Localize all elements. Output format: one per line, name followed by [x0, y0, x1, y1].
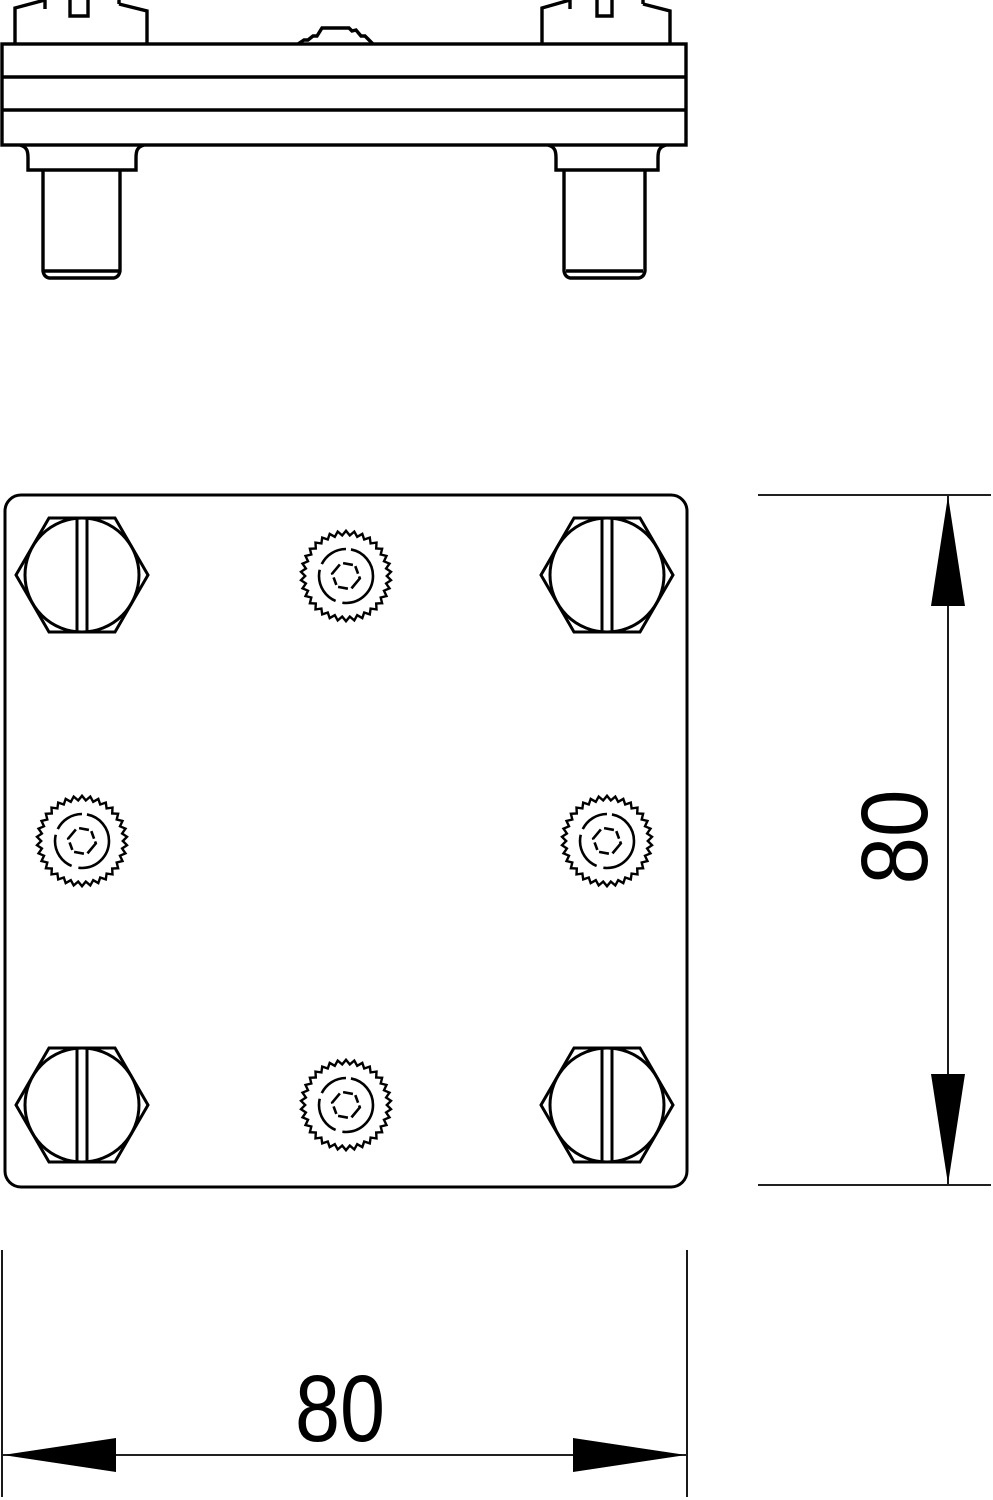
- screw-head-edge: [119, 4, 147, 44]
- horizontal-dimension-label: 80: [295, 1356, 385, 1462]
- vertical-dimension: 80: [758, 495, 991, 1185]
- drawing-canvas: 80 80: [0, 0, 993, 1500]
- rivet-bump: [298, 28, 373, 44]
- knurled-rivet-bottom: [301, 1060, 391, 1150]
- screw-head-edge: [542, 0, 570, 44]
- clamp-bar-body: [2, 44, 686, 145]
- arrowhead-left-icon: [3, 1438, 116, 1472]
- screw-head-edge: [15, 0, 45, 44]
- vertical-dimension-label: 80: [842, 790, 948, 885]
- hex-bolt-top-left: [16, 518, 148, 632]
- screw-slot: [70, 0, 88, 16]
- arrowhead-up-icon: [931, 496, 965, 606]
- screw-head-right: [542, 0, 670, 44]
- stud-collar: [548, 145, 666, 170]
- stud-shaft: [43, 170, 120, 278]
- stud-collar: [20, 145, 144, 170]
- screw-head-left: [15, 0, 147, 44]
- side-view-clamp: [2, 0, 686, 278]
- hex-bolt-top-right: [541, 518, 673, 632]
- plan-view-plate: [5, 495, 687, 1187]
- screw-head-edge: [643, 4, 670, 44]
- knurled-rivet-top: [301, 531, 391, 621]
- technical-drawing: 80 80: [0, 0, 993, 1500]
- stud-left: [20, 145, 144, 278]
- hex-bolt-bottom-right: [541, 1048, 673, 1162]
- arrowhead-right-icon: [573, 1438, 686, 1472]
- knurled-rivet-right: [562, 796, 652, 886]
- stud-right: [548, 145, 666, 278]
- stud-shaft: [564, 170, 645, 278]
- hex-bolt-bottom-left: [16, 1048, 148, 1162]
- screw-slot: [597, 0, 612, 16]
- knurled-rivet-left: [37, 796, 127, 886]
- horizontal-dimension: 80: [2, 1250, 687, 1497]
- arrowhead-down-icon: [931, 1074, 965, 1184]
- plate-outline: [5, 495, 687, 1187]
